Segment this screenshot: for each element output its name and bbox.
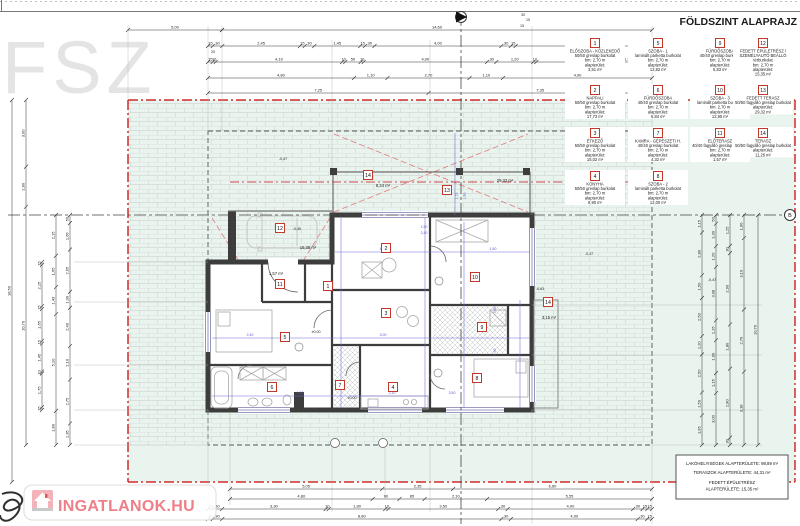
- legend-number: 5: [657, 41, 660, 47]
- watermark-box: INGATLANOK.HU: [24, 485, 216, 520]
- dim-label: 15: [300, 41, 305, 46]
- room-number: 14: [365, 173, 371, 179]
- legend-number: 10: [717, 88, 723, 94]
- dim-label: 10: [360, 57, 365, 62]
- legend-number: 13: [760, 88, 766, 94]
- dim-label: 1,50: [697, 282, 702, 291]
- dim-label: 2,70: [425, 73, 434, 78]
- dim-label: 2,75: [65, 397, 70, 406]
- dim-label: 15: [360, 41, 365, 46]
- dim-label: 1,90: [711, 352, 716, 361]
- dim-label: 4,90: [574, 73, 583, 78]
- dim-label: 1,65: [37, 320, 42, 329]
- dim-label: 10: [212, 57, 217, 62]
- plan-text: -0,63: [536, 287, 544, 291]
- dim-label: 30: [636, 504, 641, 509]
- dim-label: 1,20: [711, 252, 716, 261]
- legend-number: 11: [717, 131, 722, 137]
- scribble-mark: [0, 492, 22, 520]
- legend-line: 15,35 m²: [755, 72, 772, 77]
- plan-text: -0,47: [708, 278, 716, 282]
- watermark-house-icon: [32, 490, 53, 511]
- dim-label: 15: [208, 41, 213, 46]
- room-number: 14: [545, 300, 551, 306]
- legend-entry: 1ELŐSZOBA - KÖZLEKEDŐ50/50 greslap burko…: [565, 37, 625, 72]
- legend-number: 6: [657, 88, 660, 94]
- dim-label: 3,10: [739, 269, 744, 278]
- dim-label: 1,50: [697, 399, 702, 408]
- legend-entry: 13FEDETT TERASZ50/50 fagyálló greslap bu…: [733, 84, 793, 114]
- dim-label: 6,60: [549, 484, 558, 489]
- legend-number: 8: [657, 174, 660, 180]
- blue-dim-label: 1,90: [463, 193, 467, 200]
- summary-line-1: LAKÓHELYISÉGEK ALAPTERÜLETE: 98,89 m²: [686, 461, 779, 466]
- legend-entry: 7KAMRA - GÉPÉSZETI H.40/40 greslap burko…: [628, 127, 688, 162]
- dim-label: 10,70: [21, 320, 26, 331]
- legend-line: 17,73 m²: [587, 114, 604, 119]
- dim-label: 10: [533, 57, 538, 62]
- legend-line: 11,26 m²: [755, 152, 771, 157]
- dim-label: 30: [307, 41, 312, 46]
- plan-text: 30: [521, 13, 525, 17]
- dim-label: 1,80: [21, 182, 26, 191]
- dim-label: 1,30: [711, 230, 716, 239]
- blue-dim-label: 3,00: [380, 333, 387, 337]
- dim-label: 2,70: [739, 336, 744, 345]
- dim-label: 85: [410, 494, 415, 499]
- legend-line: 5,83 m²: [713, 67, 728, 72]
- room-number: 12: [277, 226, 283, 232]
- legend-entry: 12FEDETT ÉPÜLETRÉSZ /SZEMÉLYAUTÓ BEÁLLÓt…: [733, 37, 793, 77]
- dim-label: 2,10: [65, 358, 70, 367]
- section-marker-a: [456, 12, 468, 23]
- legend-line: 4,32 m²: [651, 157, 666, 162]
- legend-number: 4: [594, 174, 597, 180]
- corner-label-fsz: FSZ: [2, 26, 157, 109]
- dim-label: 3,00: [711, 414, 716, 423]
- room-number: 6: [271, 385, 274, 391]
- dim-label: 3,30: [270, 504, 279, 509]
- legend-entry: 14TERASZ50/50 fagyálló greslap burkolata…: [733, 127, 793, 157]
- dim-label: 1,10: [482, 73, 491, 78]
- room-number: 13: [444, 188, 450, 194]
- dim-label: 4,00: [567, 504, 576, 509]
- legend-number: 3: [594, 131, 597, 137]
- legend-entry: 6FÜRDŐSZOBA40/40 greslap burkolatbm: 2,7…: [628, 84, 688, 119]
- dim-label: 2,40: [65, 322, 70, 331]
- legend-line: 6,84 m²: [651, 114, 666, 119]
- dim-label: 4,00: [434, 41, 443, 46]
- legend-entry: 3ÉTKEZŐ50/50 greslap burkolatbm: 2,70 ma…: [565, 127, 625, 162]
- room-number: 10: [472, 275, 478, 281]
- dim-label: 2,35: [414, 484, 423, 489]
- plan-text: 20: [211, 50, 215, 54]
- dim-label: 1,80: [51, 423, 56, 432]
- dim-label: 3,00: [21, 129, 26, 138]
- dim-label: 15: [647, 504, 652, 509]
- legend-entry: 8SZOBA - 2laminált parketta burkolatbm: …: [628, 170, 688, 205]
- dim-label: 7,25: [314, 88, 323, 93]
- dim-label: 1,43: [51, 296, 56, 305]
- dim-label: 30: [725, 246, 730, 251]
- dim-label: 1,95: [697, 425, 702, 434]
- room-number: 7: [339, 383, 342, 389]
- legend-number: 1: [594, 41, 597, 47]
- blue-dim-label: 3,50: [449, 391, 456, 395]
- summary-box: LAKÓHELYISÉGEK ALAPTERÜLETE: 98,89 m² TE…: [676, 455, 788, 499]
- room-number: 2: [385, 246, 388, 252]
- blue-dim-label: 2,40: [421, 231, 428, 235]
- plan-text: ±0,00: [348, 396, 357, 400]
- dim-label: 2,80: [725, 399, 730, 408]
- dim-label: 1,75: [37, 386, 42, 395]
- dim-label: 30: [368, 41, 373, 46]
- dim-label: 7,35: [536, 88, 545, 93]
- svg-text:B: B: [788, 213, 792, 219]
- legend-line: 12,82 m²: [650, 67, 667, 72]
- dim-label: 30: [640, 514, 645, 519]
- dim-label: 3,18: [739, 404, 744, 413]
- summary-line-4: ALAPTERÜLETE: 15,35 m²: [706, 487, 759, 492]
- legend-line: 3,51 m²: [588, 67, 603, 72]
- plan-text: 8,24 m²: [376, 183, 391, 188]
- legend-number: 7: [657, 131, 660, 137]
- plan-text: 1,57 m²: [269, 271, 284, 276]
- blue-dim-label: 1,90: [493, 349, 497, 356]
- room-number: 4: [392, 385, 395, 391]
- dim-label: 4,00: [421, 57, 430, 62]
- blue-dim-label: 1,50: [421, 225, 428, 229]
- dim-label: 30: [501, 504, 506, 509]
- blue-dim-label: 1,50: [490, 247, 497, 251]
- legend-line: 1,57 m²: [713, 157, 728, 162]
- plan-text: ±0,00: [312, 330, 321, 334]
- blue-dim-label: 3,08: [493, 307, 497, 314]
- dim-label: 3,50: [439, 504, 448, 509]
- dim-label: 2,65: [65, 266, 70, 275]
- dim-label: 10: [385, 504, 390, 509]
- dim-label: 1,15: [697, 219, 702, 228]
- room-number: 3: [385, 311, 388, 317]
- legend-number: 12: [760, 41, 766, 47]
- dim-label: 1,80: [353, 504, 362, 509]
- dim-label: 50: [65, 216, 70, 221]
- blue-dim-label: 2,40: [247, 333, 254, 337]
- dim-label: 90: [384, 494, 389, 499]
- legend-line: 12,00 m²: [650, 200, 667, 205]
- dim-label: 5,55: [566, 494, 575, 499]
- watermark-text: INGATLANOK.HU: [58, 498, 195, 515]
- legend-entry: 2NAPPALI50/50 greslap burkolatbm: 2,70 m…: [565, 84, 625, 119]
- legend-entry: 4KONYHA50/50 greslap burkolatbm: 2,70 ma…: [565, 170, 625, 205]
- dim-label: 1,25: [725, 226, 730, 235]
- dim-label: 1,66: [65, 232, 70, 241]
- dim-label: 1,65: [51, 267, 56, 276]
- dim-label: 30: [489, 57, 494, 62]
- dim-label: 8,80: [358, 514, 367, 519]
- dim-label: 1,20: [697, 341, 702, 350]
- dim-label: 2,45: [257, 41, 266, 46]
- blue-dim-label: 1,20: [297, 391, 304, 395]
- dim-label: 50: [351, 57, 356, 62]
- dim-label: 1,00: [739, 222, 744, 231]
- dim-label: 1,35: [65, 430, 70, 439]
- dim-label: 2,10: [452, 494, 461, 499]
- dim-label: 30: [725, 438, 730, 443]
- plan-text: -0,47: [279, 157, 287, 161]
- dim-label: 10: [341, 57, 346, 62]
- legend-line: 15,02 m²: [587, 157, 604, 162]
- dim-label: 1,15: [711, 378, 716, 387]
- legend-line: 29,32 m²: [755, 109, 772, 114]
- dim-label: 18,50: [7, 285, 12, 296]
- dim-label: 4,80: [277, 73, 286, 78]
- dim-label: 1,10: [367, 73, 376, 78]
- dim-label: 10: [37, 370, 42, 375]
- dim-label: 2,15: [37, 281, 42, 290]
- dim-label: 1,15: [711, 326, 716, 335]
- plan-text: 15,35 m²: [300, 245, 317, 250]
- dim-label: 2,50: [697, 312, 702, 321]
- room-number: 5: [284, 335, 287, 341]
- room-number: 8: [476, 376, 479, 382]
- summary-line-2: TERASZOK ALAPTERÜLETE: 44,31 m²: [694, 470, 771, 475]
- legend-entry: 5SZOBA - 1laminált parketta burkolatbm: …: [628, 37, 688, 72]
- dim-label: 15: [37, 260, 42, 265]
- plan-text: 15: [520, 24, 524, 28]
- room-number: 9: [481, 325, 484, 331]
- dim-label: 50: [711, 216, 716, 221]
- dim-label: 1,80: [725, 342, 730, 351]
- plan-text: 3,15 m²: [542, 315, 557, 320]
- dim-label: 2,90: [725, 284, 730, 293]
- dim-label: 1,45: [333, 41, 342, 46]
- dim-label: 15: [647, 514, 652, 519]
- dim-label: 30: [504, 41, 509, 46]
- dim-label: 15: [37, 406, 42, 411]
- plan-text: 29,32 m²: [497, 178, 514, 183]
- summary-line-3: FEDETT ÉPÜLETRÉSZ: [709, 480, 755, 485]
- dim-label: 1,45: [37, 353, 42, 362]
- floor-plan-canvas: FSZ FÖLDSZINT ALAPRAJZ: [0, 0, 800, 526]
- dim-label: 4,10: [275, 57, 284, 62]
- dim-label: 2,50: [697, 369, 702, 378]
- dim-label: 4,00: [570, 514, 579, 519]
- legend-number: 14: [760, 131, 766, 137]
- dim-label: 1,20: [511, 57, 520, 62]
- dim-label: 14,60: [432, 25, 443, 30]
- room-number: 11: [277, 282, 282, 288]
- dim-label: 15: [37, 339, 42, 344]
- plan-text: -0,47: [585, 252, 593, 256]
- carport-pier: [228, 211, 236, 262]
- dim-label: 15: [37, 305, 42, 310]
- dim-label: 2,80: [697, 249, 702, 258]
- dim-label: 1,00: [65, 295, 70, 304]
- dim-label: 15: [511, 41, 516, 46]
- dim-label: 5,05: [302, 484, 311, 489]
- room-number: 1: [327, 284, 330, 290]
- dim-label: 5,10: [51, 358, 56, 367]
- dim-label: 5,00: [171, 25, 180, 30]
- section-marker-b: B: [785, 210, 796, 221]
- plan-text: 15: [526, 18, 530, 22]
- legend-number: 9: [719, 41, 722, 47]
- dim-label: 30: [215, 41, 220, 46]
- dim-label: 4,80: [297, 494, 306, 499]
- plan-text: -0,45: [293, 227, 301, 231]
- dim-label: 2,15: [51, 231, 56, 240]
- dim-label: 3,08: [711, 289, 716, 298]
- legend-line: 12,90 m²: [712, 114, 729, 119]
- blue-dim-label: 1,75: [455, 193, 459, 200]
- floor-plan-page: FSZ FÖLDSZINT ALAPRAJZ: [0, 0, 800, 526]
- dim-label: 10: [325, 504, 330, 509]
- dim-label: 10,70: [753, 324, 758, 335]
- legend-line: 8,90 m²: [588, 200, 603, 205]
- dim-label: 30: [504, 514, 509, 519]
- page-title: FÖLDSZINT ALAPRAJZ: [680, 15, 798, 28]
- legend-number: 2: [594, 88, 597, 94]
